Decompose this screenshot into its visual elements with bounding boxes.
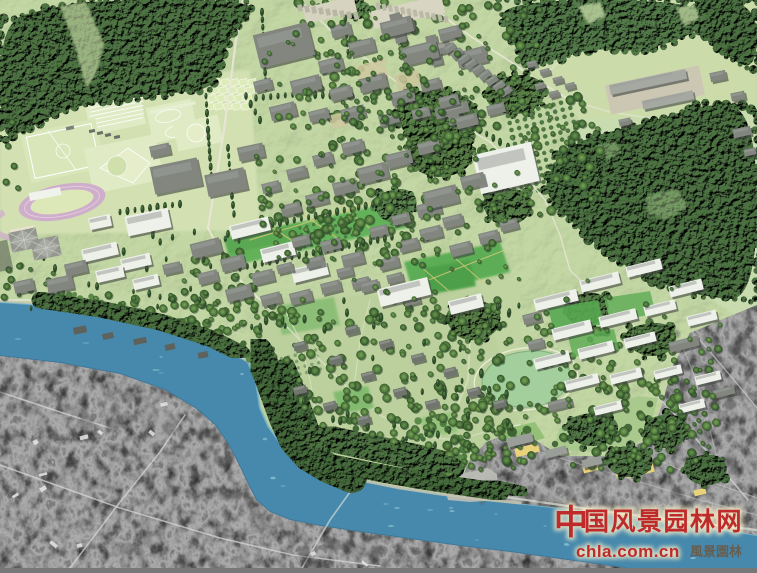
svg-text:国风景园林网: 国风景园林网 xyxy=(584,508,743,536)
svg-text:中: 中 xyxy=(554,504,588,542)
svg-text:風景園林: 風景園林 xyxy=(690,544,742,559)
svg-text:chla.com.cn: chla.com.cn xyxy=(576,542,680,561)
